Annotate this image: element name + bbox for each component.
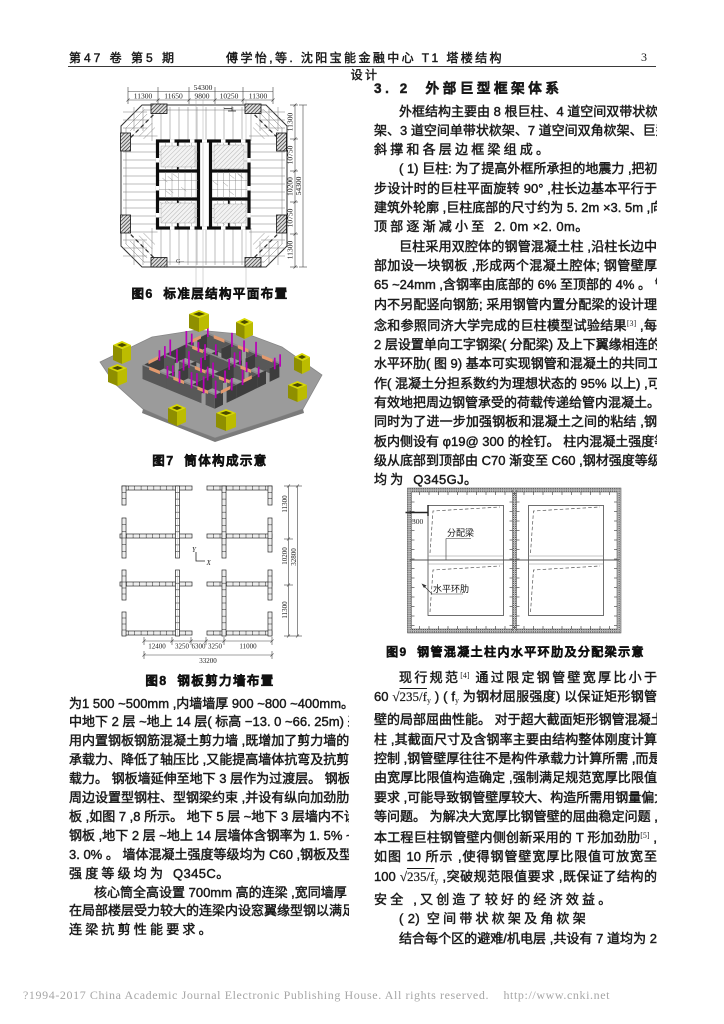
svg-text:300: 300: [412, 517, 424, 526]
svg-text:6300: 6300: [192, 643, 207, 651]
svg-text:33200: 33200: [199, 657, 217, 665]
svg-text:11300: 11300: [281, 495, 289, 513]
svg-text:11300: 11300: [134, 92, 153, 101]
svg-text:10200: 10200: [281, 547, 289, 565]
svg-text:9800: 9800: [195, 92, 210, 101]
svg-text:11300: 11300: [281, 601, 289, 619]
svg-text:G–: G–: [176, 258, 185, 265]
svg-text:3250: 3250: [208, 643, 223, 651]
svg-text:11300: 11300: [249, 92, 268, 101]
svg-text:12400: 12400: [148, 643, 166, 651]
svg-text:分配梁: 分配梁: [447, 527, 474, 538]
svg-text:水平环肋: 水平环肋: [433, 583, 469, 594]
svg-text:32800: 32800: [290, 548, 298, 566]
svg-text:11000: 11000: [239, 643, 257, 651]
svg-text:11650: 11650: [164, 92, 183, 101]
svg-text:10250: 10250: [220, 92, 239, 101]
svg-text:54300: 54300: [294, 176, 303, 195]
svg-text:3250: 3250: [175, 643, 190, 651]
svg-text:X: X: [206, 559, 212, 567]
